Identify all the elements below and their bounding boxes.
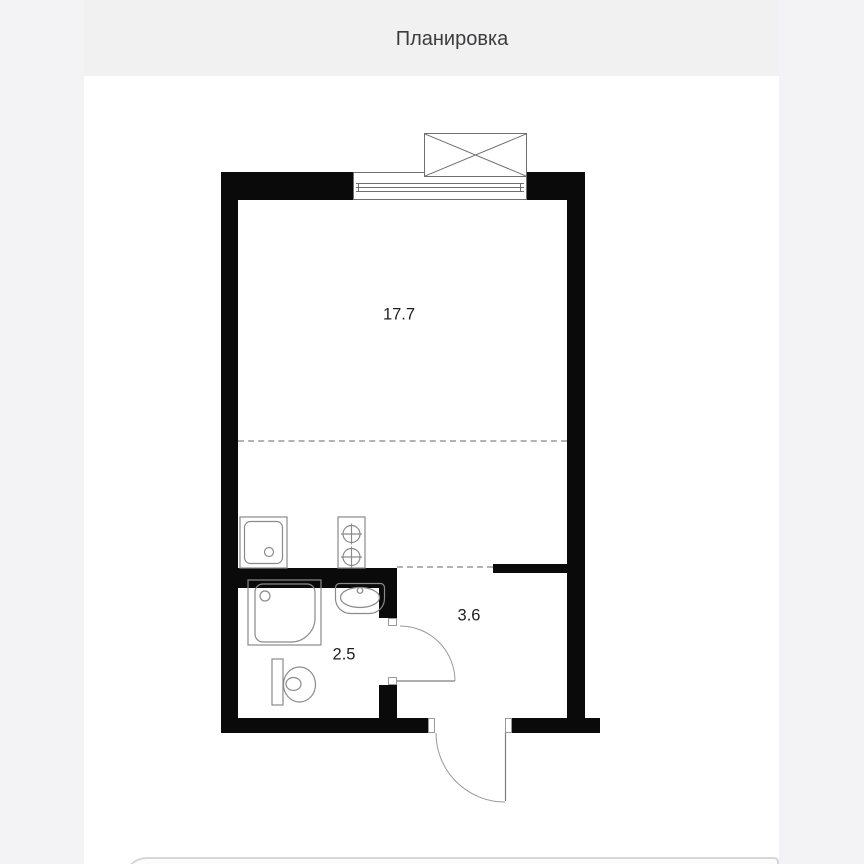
room-area-label-bathroom: 2.5: [333, 646, 356, 665]
bathroom-door: [397, 626, 455, 681]
shower: [248, 580, 321, 645]
kitchen-sink: [240, 517, 287, 568]
toilet: [272, 659, 316, 705]
entrance-door: [436, 733, 506, 802]
screen: Планировка: [0, 0, 864, 864]
room-area-label-living: 17.7: [383, 306, 415, 325]
stove: [338, 517, 365, 568]
washbasin: [336, 584, 385, 614]
room-area-label-hallway: 3.6: [458, 607, 481, 626]
fixtures-layer: [0, 0, 864, 864]
bottom-sheet-card[interactable]: [123, 857, 779, 864]
